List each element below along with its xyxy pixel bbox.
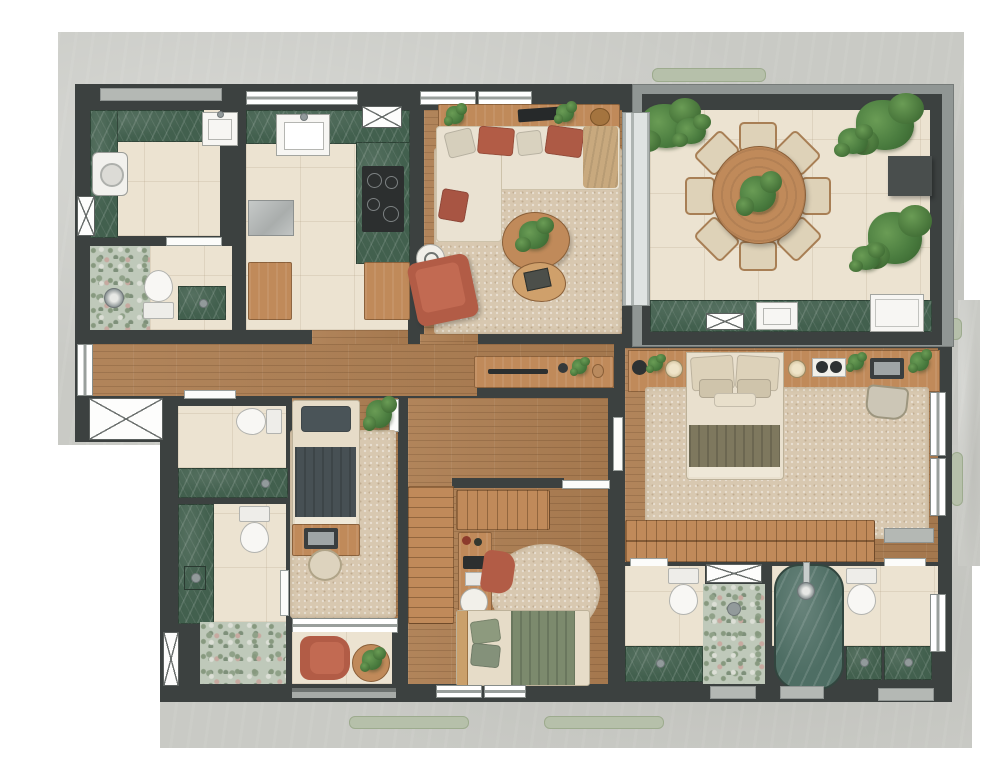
bedroom2-wardrobe-side — [408, 486, 454, 624]
balcony-table-plant — [362, 650, 382, 670]
master-window-1 — [930, 392, 946, 456]
sofa-pillow-gray-2 — [516, 130, 544, 157]
kitchen-cabinet-left — [248, 262, 292, 320]
laundry-window — [100, 88, 222, 101]
living-window-2 — [478, 91, 532, 105]
bath1-vanity — [178, 468, 288, 498]
bath4-vanity-2 — [884, 646, 932, 680]
master-door-leaf — [613, 417, 623, 471]
hallway-console-vase — [592, 364, 604, 378]
terrace-grill-box — [888, 156, 932, 196]
sofa-pillow-rust-2 — [544, 125, 585, 159]
master-lamp-right — [788, 360, 806, 378]
left-wall-vent-hatch — [77, 196, 95, 236]
bedroom2-desk-cup-1 — [462, 536, 471, 545]
terrace-plant-right-2 — [852, 246, 880, 270]
bedroom2-pillow-2 — [470, 643, 501, 669]
bath2-shower-wall — [178, 504, 214, 624]
cooktop — [362, 166, 404, 232]
console-plant-right — [556, 104, 574, 122]
living-armchair — [406, 252, 480, 327]
bedroom2-desk-cup-2 — [474, 538, 482, 546]
terrace-plant-top-right-2 — [838, 128, 868, 154]
bedroom2-window-1 — [436, 685, 482, 698]
master-desk-laptop — [870, 358, 904, 379]
bedroom1-balcony-door — [292, 618, 398, 633]
sliding-glass-door-terrace — [622, 112, 650, 306]
bath4-tub-drain — [797, 582, 815, 600]
hallway-console-soundbar — [488, 369, 548, 374]
bedroom2-window-2 — [484, 685, 526, 698]
bath4-window-bottom-right — [878, 688, 934, 701]
bath3-niche-hatch — [706, 564, 762, 583]
bath4-vanity-1 — [846, 646, 882, 680]
master-pillow-lumbar — [714, 393, 756, 407]
bath2-shower-mixer — [184, 566, 206, 590]
bath2-window-hatch — [163, 632, 179, 686]
planter-ledge-terrace-top — [652, 68, 766, 82]
master-wardrobe — [625, 520, 875, 562]
sofa-pillow-rust-1 — [477, 125, 515, 156]
bath3-shower-floor — [703, 584, 765, 684]
console-basket — [590, 108, 610, 126]
master-lamp-left — [665, 360, 683, 378]
bath2-toilet — [238, 506, 270, 552]
dining-chair — [685, 177, 715, 215]
terrace-plant-top-left-2 — [676, 118, 706, 144]
bedroom2-pillow-1 — [470, 618, 502, 645]
wc-floor-pebble — [90, 246, 150, 330]
living-window-1 — [420, 91, 476, 105]
bedroom2-blanket — [511, 611, 575, 685]
terrace-counter-hatch-box — [706, 313, 744, 330]
bedroom2-door-leaf — [562, 480, 610, 489]
kitchen-window — [246, 91, 358, 105]
terrace-counter-sink — [756, 302, 798, 330]
planter-ledge-bottom-center — [544, 716, 664, 729]
coffee-table-plant — [519, 221, 549, 249]
master-desk-plant-1 — [848, 354, 864, 370]
bath3-window-bottom — [710, 686, 756, 699]
bedroom1-bed — [292, 400, 360, 530]
hallway-console-bowl — [558, 363, 568, 373]
bedroom2-bed — [456, 610, 590, 686]
master-blanket — [689, 425, 780, 467]
master-window-2 — [930, 458, 946, 516]
planter-ledge-bottom-left — [349, 716, 469, 729]
bedroom1-blanket — [295, 447, 356, 517]
master-bed — [686, 352, 784, 480]
dining-chair — [739, 241, 777, 271]
floor-plan — [0, 0, 1000, 781]
table-centerpiece-plant — [740, 176, 776, 212]
bedroom1-chair — [308, 549, 342, 581]
bedroom1-plant — [366, 400, 392, 428]
bath2-shower-pebble-floor — [200, 622, 286, 684]
kitchen-sink — [276, 114, 330, 156]
sofa-throw-blanket — [583, 126, 618, 188]
bedroom2-wardrobe-top — [456, 490, 550, 530]
bath1-toilet — [236, 408, 282, 434]
master-desk-plant-2 — [910, 352, 929, 371]
master-tray-right — [812, 358, 846, 377]
kitchen-cabinet-right — [364, 262, 410, 320]
bedroom1-pillow — [301, 406, 351, 432]
wc-vanity — [178, 286, 226, 320]
hallway-console-plant — [572, 359, 587, 374]
bath3-vanity — [625, 646, 703, 682]
concrete-slab-right — [958, 300, 980, 566]
hallway-window-left — [77, 344, 93, 396]
master-plant-left — [648, 356, 663, 371]
terrace-appliance — [870, 294, 924, 332]
wc-toilet — [143, 270, 173, 318]
console-plant-left — [446, 106, 464, 124]
balcony-armchair — [300, 636, 350, 680]
sofa-pillow-rust-3 — [438, 188, 470, 223]
refrigerator — [248, 200, 294, 236]
kitchen-shaft-hatch — [362, 106, 402, 128]
planter-ledge-right-lower — [951, 452, 963, 506]
bedroom1-laptop — [304, 528, 338, 549]
wc-shower-head — [104, 288, 124, 308]
bath4-window-right — [930, 594, 946, 652]
corridor-wall-stub — [477, 388, 618, 398]
bath2-door-leaf — [280, 570, 289, 616]
bath4-toilet — [844, 568, 878, 614]
laundry-sink — [202, 112, 238, 146]
bath3-toilet — [666, 568, 700, 614]
bath4-window-bottom — [780, 686, 824, 699]
master-bathB-transom — [884, 528, 934, 543]
washing-machine — [92, 152, 128, 196]
balcony-rail — [292, 688, 396, 698]
master-tray-left — [632, 360, 647, 375]
bath1-door-leaf — [184, 390, 236, 399]
elevator-shaft-hatch — [89, 398, 163, 440]
bedroom2-door-wall — [452, 478, 564, 488]
wc-door-leaf — [166, 237, 222, 246]
master-desk-chair — [864, 384, 909, 421]
